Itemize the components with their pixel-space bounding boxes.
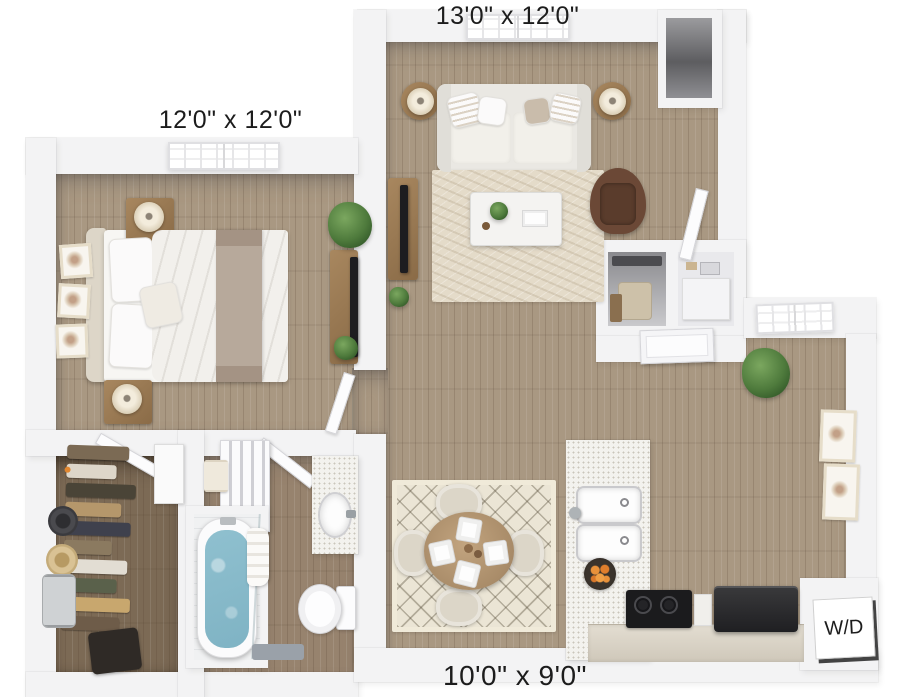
cooktop-burner (634, 596, 652, 614)
coffee-table-cup (482, 222, 490, 230)
hanging-garment (66, 483, 136, 499)
bedside-lamp (112, 384, 142, 414)
hanging-garment (66, 464, 116, 480)
bath-mat (252, 644, 304, 660)
throw-pillow (548, 91, 582, 125)
kitchen-cabinet-small (694, 594, 712, 626)
dinner-plate (482, 539, 509, 566)
wall-art-frame (55, 323, 88, 358)
storage-nook-box (610, 294, 622, 322)
cooktop-burner (660, 596, 678, 614)
potted-plant (742, 348, 790, 398)
exterior-area (744, 0, 904, 302)
wall-art-frame (822, 463, 860, 520)
sink-faucet (346, 510, 356, 518)
toilet-bowl (298, 584, 342, 634)
wall-bath-right (354, 434, 386, 662)
dinner-plate (455, 516, 483, 544)
bathtub-water (205, 530, 249, 648)
fruit-bowl (584, 558, 616, 590)
table-centerpiece (474, 550, 482, 558)
washer-dryer-unit: W/D (812, 596, 875, 659)
desk-nook-laptop (700, 262, 720, 275)
tv (400, 185, 408, 273)
entry-window (756, 302, 835, 335)
accent-chair-seat (600, 183, 636, 225)
sink-drain (620, 498, 629, 507)
dinner-plate (428, 539, 456, 567)
hanging-garment (67, 445, 129, 461)
dimension-label-living-room: 13'0" x 12'0" (395, 2, 620, 31)
desk-nook-desk (682, 278, 730, 320)
coffee-table-plant (490, 202, 508, 220)
closet-shelf (154, 444, 184, 504)
table-lamp (407, 88, 434, 115)
bedroom-window (168, 142, 280, 170)
bed-throw-blanket (216, 230, 262, 382)
kitchen-sink-basin (576, 524, 642, 562)
wall-bedroom-living-divider (354, 10, 386, 370)
hat (48, 506, 78, 536)
wall-art-frame (59, 243, 93, 279)
entry-door (639, 328, 714, 365)
hanging-towel (247, 528, 269, 586)
alcove-niche (666, 18, 712, 98)
duffel-bag (88, 627, 143, 675)
wall-art-frame (819, 409, 857, 462)
coffee-table-book (522, 210, 548, 227)
desk-nook-papers (686, 262, 697, 270)
refrigerator (714, 586, 798, 632)
dining-chair (436, 588, 482, 626)
potted-plant (328, 202, 372, 248)
kitchen-sink-basin (576, 486, 642, 524)
wall-art-frame (57, 283, 91, 319)
potted-plant (389, 287, 409, 307)
coffee-table (470, 192, 562, 246)
bedside-lamp (134, 202, 164, 232)
bedroom-doorway-floor (352, 368, 388, 434)
potted-plant (334, 336, 358, 360)
tub-faucet (220, 517, 236, 525)
storage-nook-shelf (612, 256, 662, 266)
throw-pillow (476, 95, 508, 127)
dimension-label-bedroom: 12'0" x 12'0" (118, 106, 343, 135)
kitchen-faucet (569, 507, 581, 519)
washer-dryer-label: W/D (824, 615, 864, 640)
sink-drain (620, 536, 629, 545)
table-lamp (599, 88, 626, 115)
straw-hat (46, 544, 78, 576)
storage-nook-suitcase (618, 282, 652, 320)
table-centerpiece (464, 544, 473, 553)
throw-pillow (522, 96, 551, 125)
towel-stack (204, 460, 228, 492)
suitcase (42, 574, 76, 628)
floorplan-canvas: W/D 13'0" x 12'0" 12'0" x 12'0" 10'0" x … (0, 0, 904, 697)
dimension-label-kitchen: 10'0" x 9'0" (385, 660, 645, 692)
exterior-area (876, 298, 904, 697)
